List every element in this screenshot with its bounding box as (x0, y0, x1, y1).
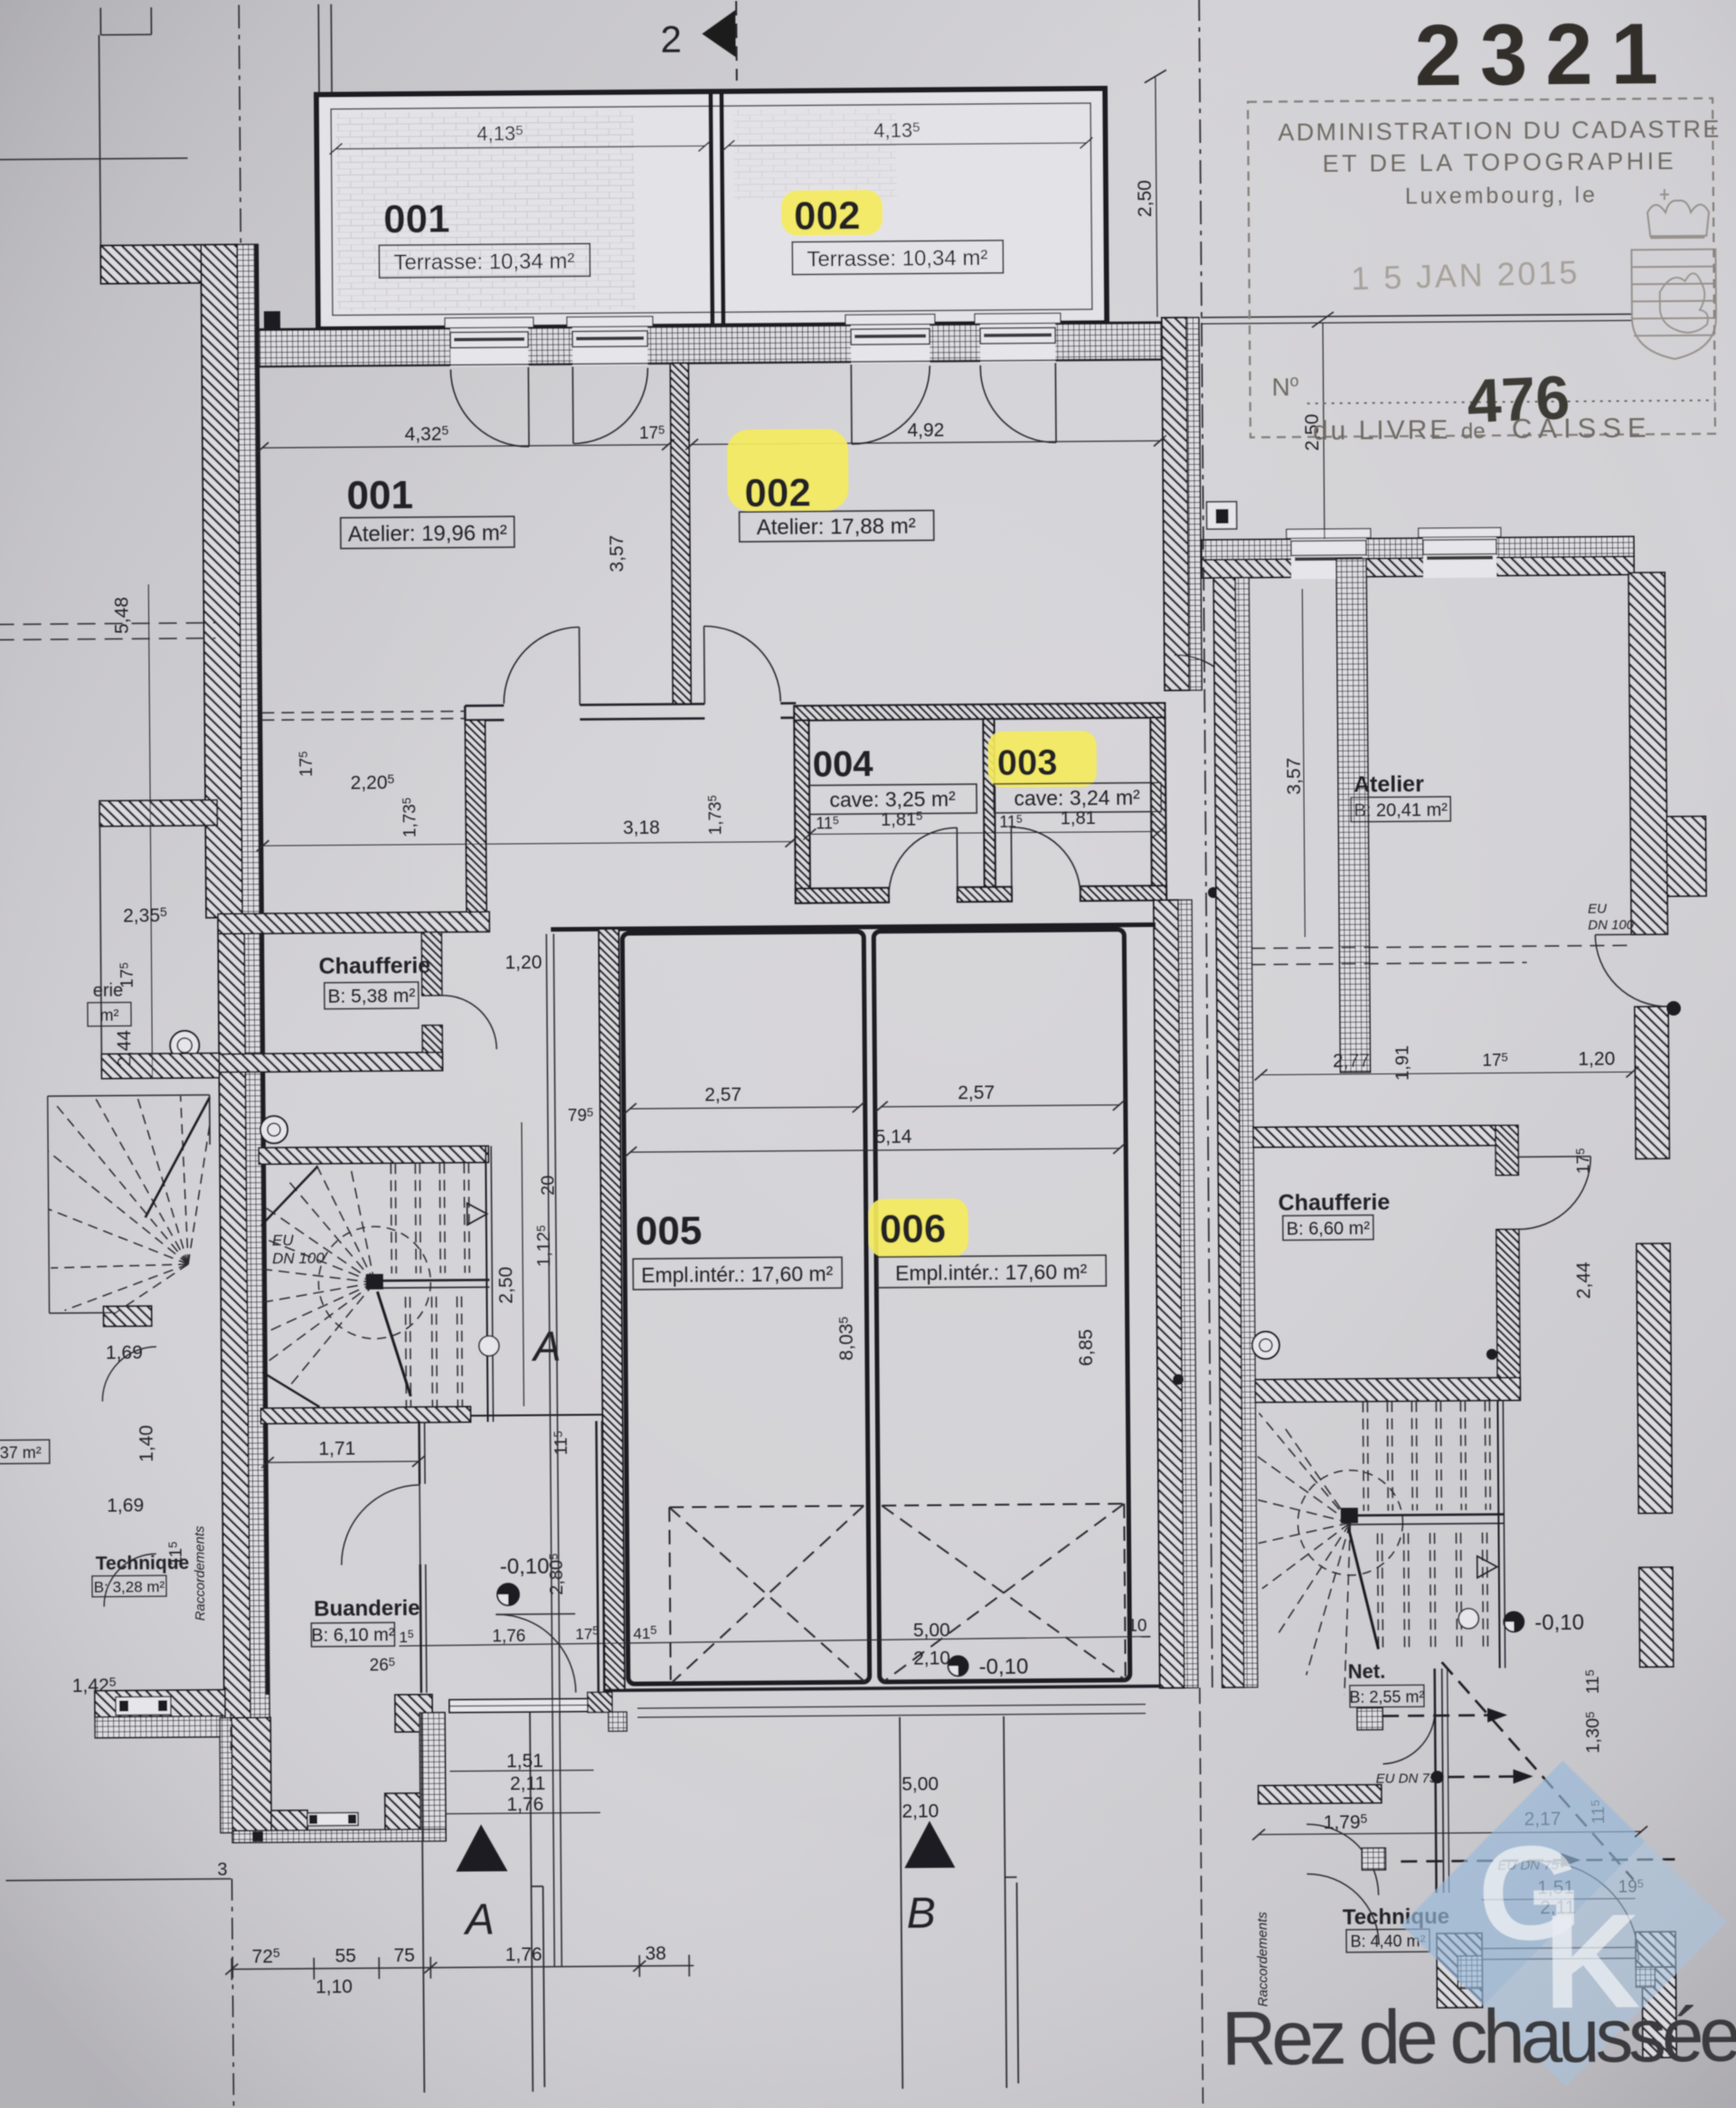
svg-text:5,14: 5,14 (875, 1127, 912, 1148)
svg-text:5,00: 5,00 (901, 1773, 939, 1794)
svg-text:4,92: 4,92 (907, 420, 944, 440)
svg-text:cave: 3,25 m²: cave: 3,25 m² (829, 787, 956, 811)
svg-text:-0,10: -0,10 (979, 1655, 1029, 1679)
svg-text:1,40: 1,40 (137, 1425, 157, 1462)
svg-text:Chaufferie: Chaufferie (1278, 1189, 1391, 1215)
svg-text:Empl.intér.: 17,60 m²: Empl.intér.: 17,60 m² (895, 1260, 1088, 1285)
svg-text:du LIVRE: du LIVRE (1313, 415, 1451, 446)
svg-text:B: 6,60 m²: B: 6,60 m² (1287, 1219, 1371, 1240)
svg-text:cave: 3,24 m²: cave: 3,24 m² (1014, 786, 1140, 810)
svg-text:005: 005 (636, 1208, 703, 1253)
svg-text:EU DN 75: EU DN 75 (1376, 1771, 1438, 1787)
svg-text:Atelier: 17,88 m²: Atelier: 17,88 m² (757, 515, 916, 540)
svg-text:-0,10: -0,10 (500, 1555, 550, 1579)
svg-text:2,44: 2,44 (1573, 1262, 1594, 1299)
svg-text:-0,10: -0,10 (1534, 1611, 1584, 1635)
svg-text:B: 6,10 m²: B: 6,10 m² (311, 1625, 395, 1646)
svg-text:de: de (1461, 420, 1486, 444)
svg-text:004: 004 (813, 744, 874, 785)
svg-text:B: 20,41 m²: B: 20,41 m² (1354, 800, 1448, 821)
svg-text:Terrasse: 10,34 m²: Terrasse: 10,34 m² (807, 246, 987, 272)
svg-text:3,57: 3,57 (607, 535, 627, 572)
svg-text:2,50: 2,50 (495, 1267, 516, 1304)
svg-text:EU: EU (272, 1232, 294, 1249)
svg-text:2,77: 2,77 (1333, 1051, 1370, 1072)
svg-text:B: 3,28 m²: B: 3,28 m² (94, 1578, 165, 1596)
svg-text:Raccordements: Raccordements (192, 1526, 208, 1621)
svg-text:Chaufferie: Chaufferie (318, 953, 430, 979)
svg-text:B: 5,38 m²: B: 5,38 m² (327, 986, 415, 1007)
svg-text:5,48: 5,48 (111, 597, 132, 634)
svg-text:003: 003 (997, 742, 1058, 783)
svg-text:A: A (463, 1895, 495, 1943)
svg-text:2,11: 2,11 (510, 1773, 546, 1794)
svg-text:2,10: 2,10 (913, 1648, 950, 1668)
svg-text:EU: EU (1588, 902, 1607, 917)
svg-text:3,57: 3,57 (1284, 758, 1305, 795)
svg-text:B: B (907, 1889, 936, 1937)
svg-text:1,69: 1,69 (107, 1495, 144, 1516)
svg-text:Raccordements: Raccordements (1255, 1912, 1271, 2008)
svg-text:002: 002 (794, 194, 861, 239)
svg-text:DN 100: DN 100 (272, 1250, 325, 1267)
svg-text:2,57: 2,57 (958, 1082, 995, 1103)
svg-text:Atelier: Atelier (1354, 771, 1424, 798)
svg-text:5,00: 5,00 (913, 1620, 950, 1640)
svg-text:1,81: 1,81 (1061, 808, 1096, 828)
svg-text:1,10: 1,10 (316, 1977, 353, 1998)
svg-text:m²: m² (99, 1007, 118, 1025)
svg-text:1,76: 1,76 (506, 1794, 543, 1815)
svg-text:2,10: 2,10 (901, 1801, 939, 1821)
svg-text:001: 001 (383, 197, 450, 242)
svg-text:1,71: 1,71 (318, 1438, 355, 1459)
svg-text:Atelier: 19,96 m²: Atelier: 19,96 m² (348, 521, 507, 546)
svg-text:2,50: 2,50 (1135, 180, 1156, 217)
svg-text:1,20: 1,20 (1578, 1049, 1615, 1070)
svg-text:N: N (1271, 373, 1289, 401)
svg-text:Terrasse: 10,34 m²: Terrasse: 10,34 m² (393, 250, 574, 276)
svg-text:o: o (1289, 372, 1298, 390)
svg-text:75: 75 (393, 1945, 415, 1966)
svg-text:1,69: 1,69 (106, 1342, 143, 1363)
svg-text:Buanderie: Buanderie (314, 1596, 420, 1621)
svg-text:2,57: 2,57 (704, 1084, 741, 1105)
svg-text:10: 10 (1127, 1617, 1146, 1636)
svg-text:002: 002 (744, 470, 811, 515)
svg-text:2321: 2321 (1414, 5, 1676, 104)
svg-text:ADMINISTRATION DU CADASTRE: ADMINISTRATION DU CADASTRE (1278, 116, 1722, 147)
svg-text:Rez de chaussée: Rez de chaussée (1222, 1991, 1736, 2081)
svg-text:001: 001 (346, 473, 413, 518)
svg-text:38: 38 (645, 1943, 666, 1964)
svg-text:1,51: 1,51 (506, 1751, 543, 1772)
svg-text:,37 m²: ,37 m² (0, 1443, 42, 1461)
svg-text:1 5 JAN 2015: 1 5 JAN 2015 (1351, 253, 1583, 297)
svg-text:2: 2 (660, 18, 682, 61)
svg-text:1,76: 1,76 (492, 1627, 525, 1646)
svg-text:Net.: Net. (1348, 1660, 1386, 1683)
svg-text:1,76: 1,76 (505, 1944, 542, 1965)
svg-text:3: 3 (217, 1860, 227, 1880)
svg-text:DN 100: DN 100 (1588, 917, 1635, 932)
svg-text:2,44: 2,44 (114, 1030, 135, 1067)
svg-text:1,20: 1,20 (505, 952, 542, 973)
svg-text:B: 2,55 m²: B: 2,55 m² (1349, 1687, 1424, 1706)
svg-text:3,18: 3,18 (623, 818, 660, 838)
svg-text:Luxembourg, le: Luxembourg, le (1405, 183, 1597, 210)
svg-text:6,85: 6,85 (1076, 1329, 1097, 1366)
svg-text:ET DE LA TOPOGRAPHIE: ET DE LA TOPOGRAPHIE (1323, 147, 1677, 177)
svg-text:CAISSE: CAISSE (1512, 411, 1653, 444)
svg-text:Empl.intér.: 17,60 m²: Empl.intér.: 17,60 m² (641, 1262, 834, 1287)
svg-text:55: 55 (335, 1945, 356, 1966)
svg-text:006: 006 (880, 1206, 947, 1252)
svg-text:1,91: 1,91 (1392, 1045, 1412, 1081)
